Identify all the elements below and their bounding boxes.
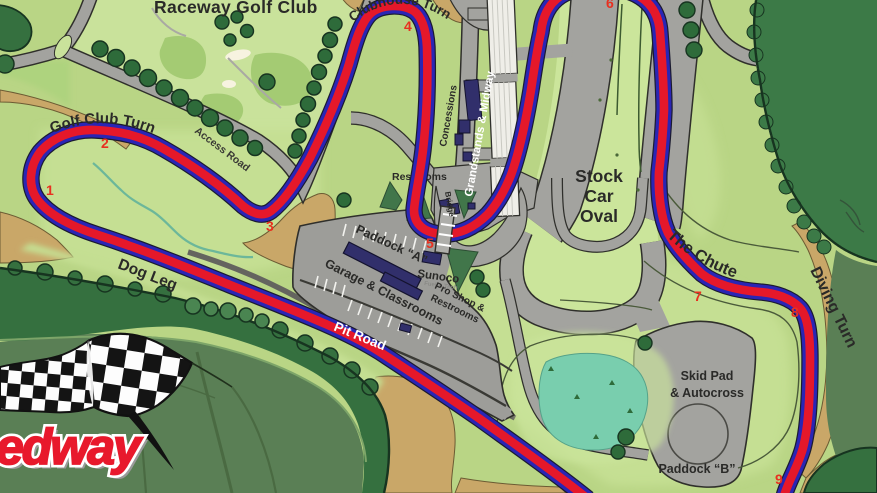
svg-text:Raceway Golf Club: Raceway Golf Club	[154, 0, 318, 17]
svg-text:Stock: Stock	[575, 166, 623, 186]
svg-text:5: 5	[426, 235, 434, 251]
svg-text:Oval: Oval	[580, 206, 618, 226]
svg-text:Skid Pad: Skid Pad	[681, 369, 734, 383]
svg-text:1: 1	[46, 182, 54, 198]
svg-text:edway: edway	[0, 419, 143, 475]
svg-text:Paddock “B”: Paddock “B”	[658, 462, 735, 476]
svg-text:Car: Car	[584, 186, 613, 206]
svg-text:6: 6	[606, 0, 614, 11]
svg-text:& Autocross: & Autocross	[670, 386, 744, 400]
svg-text:3: 3	[266, 218, 274, 234]
svg-text:9: 9	[775, 471, 783, 487]
svg-text:2: 2	[101, 135, 109, 151]
svg-text:8: 8	[791, 304, 799, 320]
svg-text:4: 4	[404, 18, 412, 34]
svg-text:7: 7	[694, 288, 702, 304]
